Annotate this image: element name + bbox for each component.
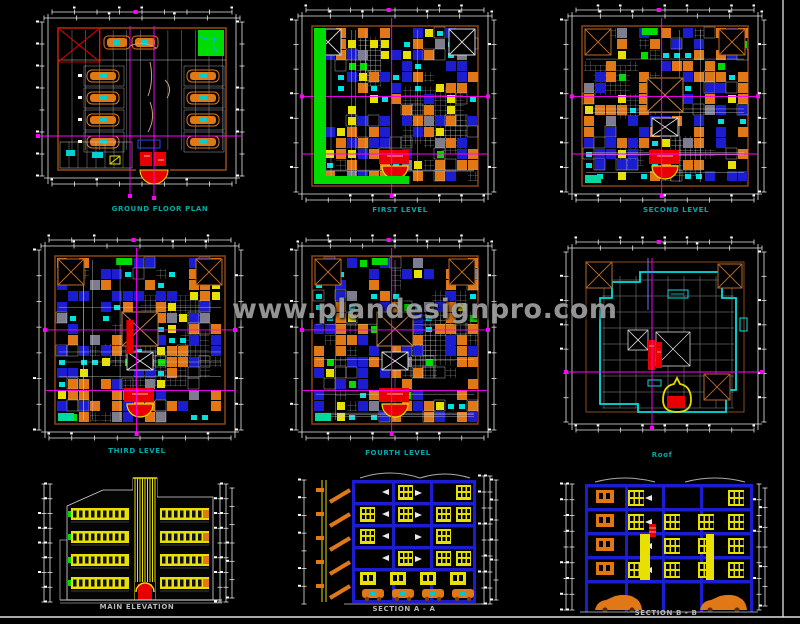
watermark: www.plandesignpro.com (232, 294, 618, 325)
label-fourth-level: FOURTH LEVEL (365, 449, 431, 457)
label-second-level: SECOND LEVEL (643, 206, 709, 214)
label-third-level: THIRD LEVEL (108, 447, 165, 455)
label-ground-floor-plan: GROUND FLOOR PLAN (112, 205, 209, 213)
label-section-a-a: SECTION A - A (372, 605, 435, 613)
label-first-level: FIRST LEVEL (372, 206, 428, 214)
label-roof: Roof (652, 451, 672, 459)
cad-sheet: GROUND FLOOR PLAN FIRST LEVEL SECOND LEV… (0, 0, 800, 624)
label-main-elevation: MAIN ELEVATION (100, 603, 175, 611)
label-section-b-b: SECTION B - B (635, 609, 698, 617)
